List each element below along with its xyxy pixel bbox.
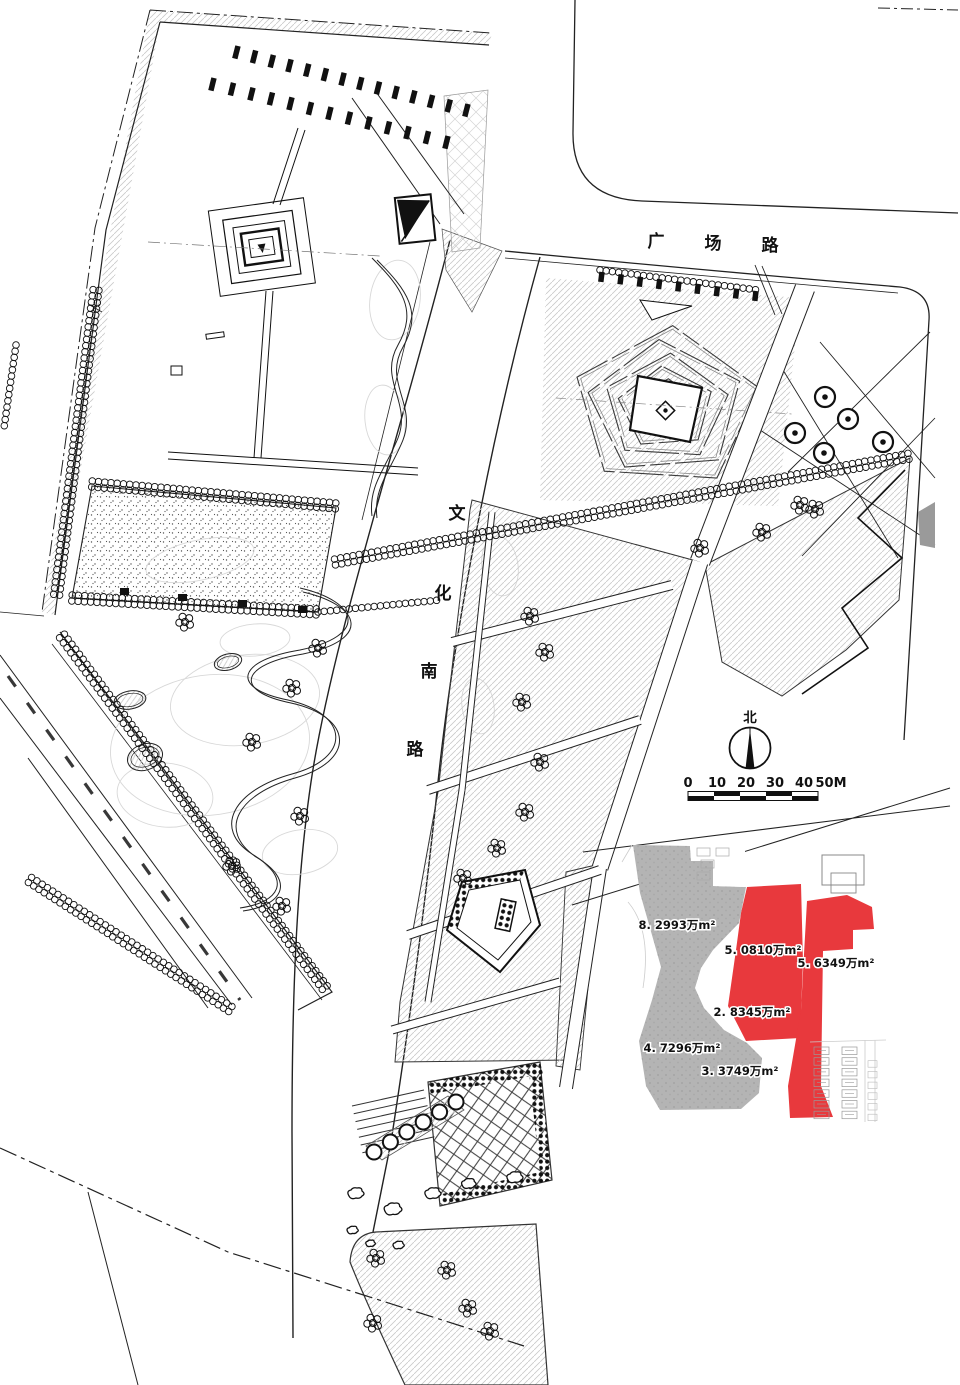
wenhua-road-char-1: 化 xyxy=(435,583,452,604)
site-plan-page: 北 0 10 20 30 40 50M 8. 2993万m² 5. 0810万m… xyxy=(0,0,960,1385)
wenhua-road-char-3: 路 xyxy=(407,739,425,760)
inset-area-label-5: 3. 3749万m² xyxy=(702,1064,779,1078)
ponds xyxy=(113,651,244,776)
wenhua-road-char-0: 文 xyxy=(449,503,467,524)
south-lawn xyxy=(350,1224,548,1385)
gravel-field xyxy=(72,486,336,613)
inset-area-label-2: 5. 6349万m² xyxy=(798,956,875,970)
park-entrance-structure xyxy=(395,194,436,244)
site-plan-drawing: 北 0 10 20 30 40 50M 8. 2993万m² 5. 0810万m… xyxy=(0,0,960,1385)
scale-end-label: 50M xyxy=(815,776,846,791)
north-needle xyxy=(746,729,755,768)
guangchang-road-char-0: 广 xyxy=(648,231,665,252)
inset-area-label-0: 8. 2993万m² xyxy=(639,918,716,932)
inset-area-label-1: 5. 0810万m² xyxy=(725,943,802,957)
scale-tick-20: 20 xyxy=(737,776,755,791)
inset-area-label-4: 4. 7296万m² xyxy=(644,1041,721,1055)
inset-key-map: 8. 2993万m² 5. 0810万m² 5. 6349万m² 2. 8345… xyxy=(622,845,886,1122)
scale-tick-0: 0 xyxy=(683,776,692,791)
wenhua-road-char-2: 南 xyxy=(421,661,438,682)
guangchang-road-char-1: 场 xyxy=(705,234,722,254)
inset-buildings-east xyxy=(822,855,864,893)
scale-bar: 0 10 20 30 40 50M xyxy=(683,776,846,801)
north-arrow: 北 xyxy=(730,710,771,769)
inset-area-label-3: 2. 8345万m² xyxy=(714,1005,791,1019)
north-label: 北 xyxy=(743,710,757,726)
scale-tick-30: 30 xyxy=(766,776,784,791)
scale-tick-40: 40 xyxy=(795,776,813,791)
guangchang-road-char-2: 路 xyxy=(762,235,780,256)
monument-plaza xyxy=(148,128,418,475)
scale-tick-10: 10 xyxy=(708,776,726,791)
